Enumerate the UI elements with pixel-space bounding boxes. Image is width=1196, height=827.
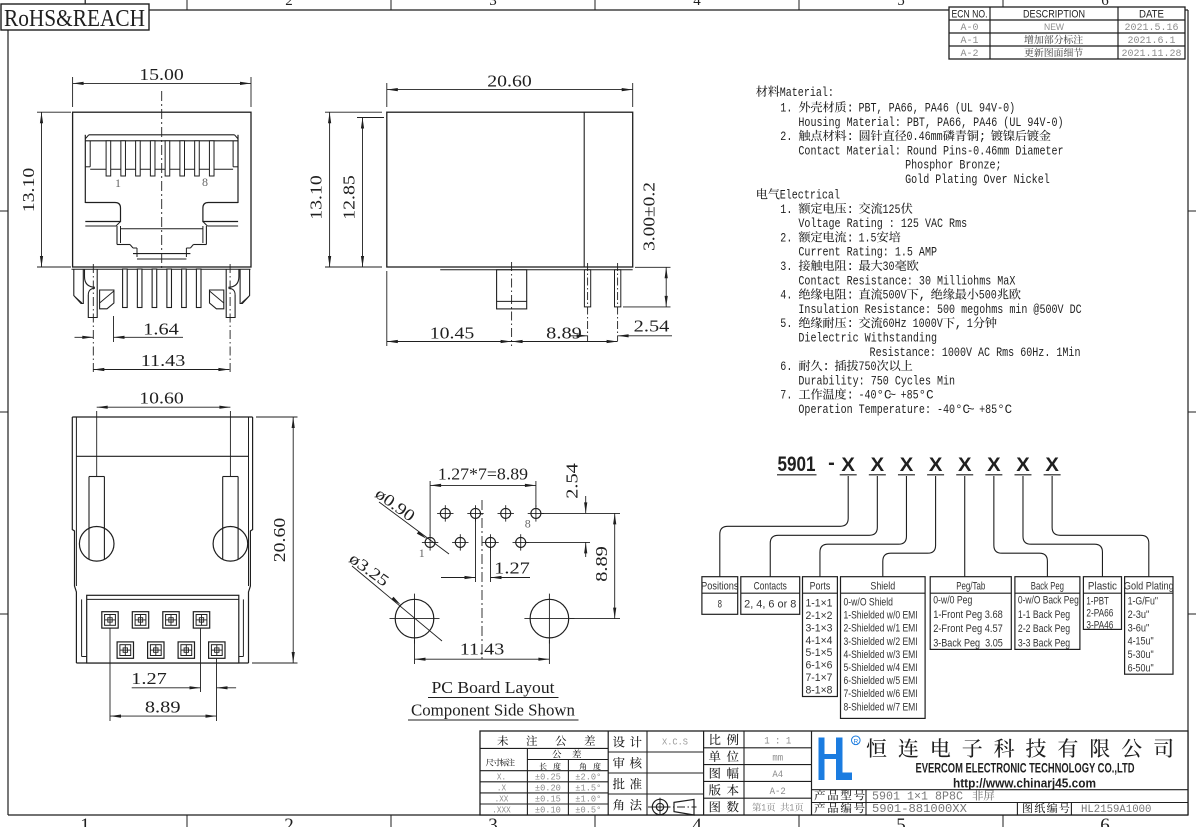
svg-text:2.54: 2.54 xyxy=(634,317,670,336)
svg-text:Operation Temperature: -40: Operation Temperature: -40 xyxy=(798,403,955,417)
svg-text:8.89: 8.89 xyxy=(546,324,582,343)
svg-text:4: 4 xyxy=(692,815,702,827)
svg-text:1.: 1. xyxy=(780,203,798,217)
svg-text:0.46mm: 0.46mm xyxy=(907,130,943,144)
svg-text:7-Shielded w/6 EMI: 7-Shielded w/6 EMI xyxy=(844,688,918,700)
svg-text:DATE: DATE xyxy=(1139,9,1164,21)
svg-text:Contact Material: Round Pins-0: Contact Material: Round Pins-0.46mm Diam… xyxy=(798,144,1063,158)
svg-text:15.00: 15.00 xyxy=(139,65,184,84)
svg-text::: : xyxy=(846,203,853,217)
svg-text:+85: +85 xyxy=(901,389,919,403)
svg-text:5901-881000XX: 5901-881000XX xyxy=(872,802,967,816)
svg-text:5-Shielded w/4 EMI: 5-Shielded w/4 EMI xyxy=(844,662,918,674)
svg-text:1.: 1. xyxy=(780,102,798,116)
svg-text:1-Front Peg 3.68: 1-Front Peg 3.68 xyxy=(933,609,1003,621)
svg-text:Plastic: Plastic xyxy=(1088,581,1117,593)
svg-text:8.89: 8.89 xyxy=(592,546,611,582)
svg-text:±0.10: ±0.10 xyxy=(535,805,561,816)
svg-text:1-1×1: 1-1×1 xyxy=(806,598,833,610)
svg-text:Material:: Material: xyxy=(780,86,834,100)
svg-text:DESCRIPTION: DESCRIPTION xyxy=(1023,9,1085,21)
svg-text:X.C.S: X.C.S xyxy=(662,737,688,748)
svg-text:13.10: 13.10 xyxy=(307,175,326,220)
svg-text:X: X xyxy=(871,455,885,476)
svg-text:R: R xyxy=(853,738,858,745)
svg-text:Back Peg: Back Peg xyxy=(1031,581,1064,593)
svg-text:Housing Material: PBT, PA66, P: Housing Material: PBT, PA66, PA46 (UL 94… xyxy=(798,116,1063,130)
svg-text:Contact Resistance: 30 Millioh: Contact Resistance: 30 Milliohms MaX xyxy=(798,274,1015,288)
svg-text:2021.5.16: 2021.5.16 xyxy=(1125,23,1179,34)
svg-text:A-0: A-0 xyxy=(961,23,979,34)
svg-text:http://www.chinarj45.com: http://www.chinarj45.com xyxy=(953,777,1096,791)
svg-text:1: 1 xyxy=(761,803,766,814)
svg-text::: : xyxy=(846,231,853,245)
svg-text:8-1×8: 8-1×8 xyxy=(806,684,833,696)
svg-text:±1.0°: ±1.0° xyxy=(575,794,601,805)
svg-text:2: 2 xyxy=(284,815,294,827)
svg-text:3-6u": 3-6u" xyxy=(1128,622,1150,634)
svg-text:13.10: 13.10 xyxy=(19,168,38,213)
svg-text:1.27*7=8.89: 1.27*7=8.89 xyxy=(438,465,528,484)
svg-text:8-Shielded w/7 EMI: 8-Shielded w/7 EMI xyxy=(844,701,918,713)
svg-text:2-1×2: 2-1×2 xyxy=(806,610,833,622)
svg-text:±2.0°: ±2.0° xyxy=(575,771,601,782)
svg-text:1-Shielded w/0 EMI: 1-Shielded w/0 EMI xyxy=(844,610,918,622)
svg-text:1: 1 xyxy=(115,176,121,190)
svg-text:1-G/Fu": 1-G/Fu" xyxy=(1128,596,1159,608)
svg-text:Contacts: Contacts xyxy=(754,581,788,593)
svg-text::: : xyxy=(846,260,853,274)
svg-text:PBT, PA66, PA46 (UL 94V-0): PBT, PA66, PA46 (UL 94V-0) xyxy=(858,102,1015,116)
svg-text:Voltage Rating : 125 VAC Rms: Voltage Rating : 125 VAC Rms xyxy=(798,217,967,231)
svg-text:3-Shielded w/2 EMI: 3-Shielded w/2 EMI xyxy=(844,636,918,648)
svg-text:2.: 2. xyxy=(780,130,798,144)
svg-text:2.54: 2.54 xyxy=(563,463,582,499)
svg-text:PC Board Layout: PC Board Layout xyxy=(432,678,555,697)
svg-text:0-w/O Back Peg: 0-w/O Back Peg xyxy=(1018,594,1079,606)
svg-text:°C: °C xyxy=(919,389,934,403)
svg-text:A4: A4 xyxy=(772,770,783,781)
svg-text:.XX: .XX xyxy=(495,795,509,805)
svg-text::: : xyxy=(846,389,853,403)
svg-text:X: X xyxy=(900,455,914,476)
svg-text:~: ~ xyxy=(889,389,896,403)
svg-text:6-Shielded w/5 EMI: 6-Shielded w/5 EMI xyxy=(844,675,918,687)
svg-text:3.00±0.2: 3.00±0.2 xyxy=(640,182,659,251)
svg-text:6: 6 xyxy=(1100,815,1110,827)
svg-text:Insulation Resistance: 500 meg: Insulation Resistance: 500 megohms min @… xyxy=(798,303,1081,317)
svg-text:2-PA66: 2-PA66 xyxy=(1086,607,1113,619)
svg-text:2-Front Peg 4.57: 2-Front Peg 4.57 xyxy=(933,623,1003,635)
svg-text::: : xyxy=(822,360,829,374)
svg-text:2-2 Back Peg: 2-2 Back Peg xyxy=(1018,623,1070,635)
svg-text:7-1×7: 7-1×7 xyxy=(806,672,833,684)
svg-text:750: 750 xyxy=(858,360,876,374)
svg-text:A-2: A-2 xyxy=(770,787,786,798)
svg-text:X: X xyxy=(987,455,1001,476)
svg-text:3-3 Back Peg: 3-3 Back Peg xyxy=(1018,638,1070,650)
svg-text:8: 8 xyxy=(202,175,208,189)
svg-text:8.89: 8.89 xyxy=(145,697,181,716)
svg-text:5-1×5: 5-1×5 xyxy=(806,647,833,659)
svg-text:±0.15: ±0.15 xyxy=(535,794,561,805)
svg-text:6-50u": 6-50u" xyxy=(1128,663,1154,675)
svg-text:1-PBT: 1-PBT xyxy=(1086,595,1109,607)
svg-text:Phosphor Bronze;: Phosphor Bronze; xyxy=(905,159,1001,173)
svg-text:1 : 1: 1 : 1 xyxy=(764,737,791,748)
svg-text:Electrical: Electrical xyxy=(780,189,840,203)
svg-text:Peg/Tab: Peg/Tab xyxy=(956,581,985,593)
svg-text:3.: 3. xyxy=(780,260,798,274)
svg-text::: : xyxy=(846,317,853,331)
svg-text::: : xyxy=(846,130,853,144)
svg-text:±1.5°: ±1.5° xyxy=(575,782,601,793)
svg-text:2-3u": 2-3u" xyxy=(1128,609,1150,621)
svg-text:A-1: A-1 xyxy=(961,36,979,47)
svg-text:11.43: 11.43 xyxy=(141,351,186,370)
svg-text:2-Shielded w/1 EMI: 2-Shielded w/1 EMI xyxy=(844,623,918,635)
svg-text:1: 1 xyxy=(419,546,425,560)
svg-text:X: X xyxy=(958,455,972,476)
svg-text:12.85: 12.85 xyxy=(340,175,359,220)
svg-text:1: 1 xyxy=(789,803,794,814)
svg-text:5-30u": 5-30u" xyxy=(1128,649,1154,661)
svg-text:X: X xyxy=(1016,455,1030,476)
svg-text:7.: 7. xyxy=(780,389,798,403)
svg-text:20.60: 20.60 xyxy=(487,72,532,91)
svg-text:-: - xyxy=(828,452,835,474)
svg-text:5: 5 xyxy=(896,815,906,827)
svg-text:3-1×3: 3-1×3 xyxy=(806,622,833,634)
svg-text:3-Back Peg 3.05: 3-Back Peg 3.05 xyxy=(933,638,1003,650)
svg-text:10.45: 10.45 xyxy=(430,324,475,343)
svg-text:Ports: Ports xyxy=(810,581,831,593)
svg-text:Resistance: 1000V AC Rms 60Hz.: Resistance: 1000V AC Rms 60Hz. 1Min xyxy=(870,346,1081,360)
svg-text::: : xyxy=(846,102,853,116)
svg-text:EVERCOM ELECTRONIC TECHNOLOGY: EVERCOM ELECTRONIC TECHNOLOGY CO.,LTD xyxy=(916,761,1135,776)
svg-text:+85: +85 xyxy=(979,403,997,417)
svg-text:30: 30 xyxy=(882,260,894,274)
svg-text:8: 8 xyxy=(718,599,722,611)
svg-text:.X: .X xyxy=(497,783,507,793)
svg-text:1.64: 1.64 xyxy=(143,320,179,339)
svg-text:±0.20: ±0.20 xyxy=(535,782,561,793)
svg-text:,: , xyxy=(919,289,926,303)
svg-text:2: 2 xyxy=(285,0,293,9)
svg-text:20.60: 20.60 xyxy=(270,518,289,563)
svg-text:11.43: 11.43 xyxy=(460,640,505,659)
svg-text:Durability: 750 Cycles Min: Durability: 750 Cycles Min xyxy=(798,374,955,388)
svg-text:X: X xyxy=(841,455,855,476)
svg-text:60Hz 1000V: 60Hz 1000V xyxy=(882,317,943,331)
svg-text:4.: 4. xyxy=(780,289,798,303)
svg-text:mm: mm xyxy=(772,753,783,764)
svg-text:X: X xyxy=(929,455,943,476)
svg-text:~: ~ xyxy=(967,403,974,417)
svg-text:1-1 Back Peg: 1-1 Back Peg xyxy=(1018,609,1070,621)
svg-text:.XXX: .XXX xyxy=(492,806,511,816)
svg-text:X.: X. xyxy=(497,772,506,782)
svg-text:6.: 6. xyxy=(780,360,798,374)
svg-text:Gold Plating: Gold Plating xyxy=(1124,581,1174,593)
svg-text:RoHS&REACH: RoHS&REACH xyxy=(4,5,145,32)
svg-text:2021.11.28: 2021.11.28 xyxy=(1122,49,1182,60)
svg-text:500V: 500V xyxy=(882,289,907,303)
svg-text:,: , xyxy=(955,317,962,331)
svg-text:2, 4, 6 or 8: 2, 4, 6 or 8 xyxy=(744,599,796,611)
svg-text:5: 5 xyxy=(897,0,905,9)
svg-text:;: ; xyxy=(979,130,986,144)
svg-text:Component Side Shown: Component Side Shown xyxy=(411,701,575,720)
svg-text:4-15u": 4-15u" xyxy=(1128,636,1154,648)
svg-text:1: 1 xyxy=(80,815,90,827)
svg-text:±0.25: ±0.25 xyxy=(535,771,561,782)
svg-text:0-w/O Shield: 0-w/O Shield xyxy=(844,597,893,609)
svg-text:Shield: Shield xyxy=(870,581,895,593)
svg-text:10.60: 10.60 xyxy=(139,389,184,408)
svg-text:Current Rating: 1.5 AMP: Current Rating: 1.5 AMP xyxy=(798,246,937,260)
svg-text:2.: 2. xyxy=(780,231,798,245)
svg-text:A-2: A-2 xyxy=(961,49,979,60)
svg-text:8: 8 xyxy=(525,517,531,531)
svg-text:1.27: 1.27 xyxy=(494,559,530,578)
svg-text:±0.5°: ±0.5° xyxy=(575,805,601,816)
svg-text:1: 1 xyxy=(967,317,973,331)
svg-text:1.27: 1.27 xyxy=(131,669,167,688)
svg-text:4-1×4: 4-1×4 xyxy=(806,635,833,647)
svg-text:3: 3 xyxy=(488,815,498,827)
svg-text:500: 500 xyxy=(979,289,997,303)
svg-text::: : xyxy=(846,289,853,303)
svg-text:°C: °C xyxy=(997,403,1012,417)
svg-text:3-PA46: 3-PA46 xyxy=(1086,619,1113,631)
svg-text:2021.6.1: 2021.6.1 xyxy=(1128,36,1176,47)
svg-text:1.5: 1.5 xyxy=(858,231,876,245)
svg-text:6-1×6: 6-1×6 xyxy=(806,660,833,672)
svg-text:ECN NO.: ECN NO. xyxy=(952,9,988,21)
svg-text:5901: 5901 xyxy=(778,453,816,476)
svg-text:125: 125 xyxy=(882,203,900,217)
svg-text:4-Shielded w/3 EMI: 4-Shielded w/3 EMI xyxy=(844,649,918,661)
svg-text:X: X xyxy=(1045,455,1059,476)
svg-text:4: 4 xyxy=(693,0,701,9)
svg-text:Positions: Positions xyxy=(701,581,739,593)
svg-text:-40: -40 xyxy=(858,389,876,403)
svg-text:NEW: NEW xyxy=(1044,22,1064,33)
svg-text:Dielectric Withstanding: Dielectric Withstanding xyxy=(798,332,937,346)
svg-text:0-w/0 Peg: 0-w/0 Peg xyxy=(933,594,972,606)
svg-text:HL2159A1000: HL2159A1000 xyxy=(1081,804,1151,816)
svg-text:5.: 5. xyxy=(780,317,798,331)
svg-text:3: 3 xyxy=(489,0,497,9)
svg-text:Gold Plating Over Nickel: Gold Plating Over Nickel xyxy=(905,173,1050,187)
